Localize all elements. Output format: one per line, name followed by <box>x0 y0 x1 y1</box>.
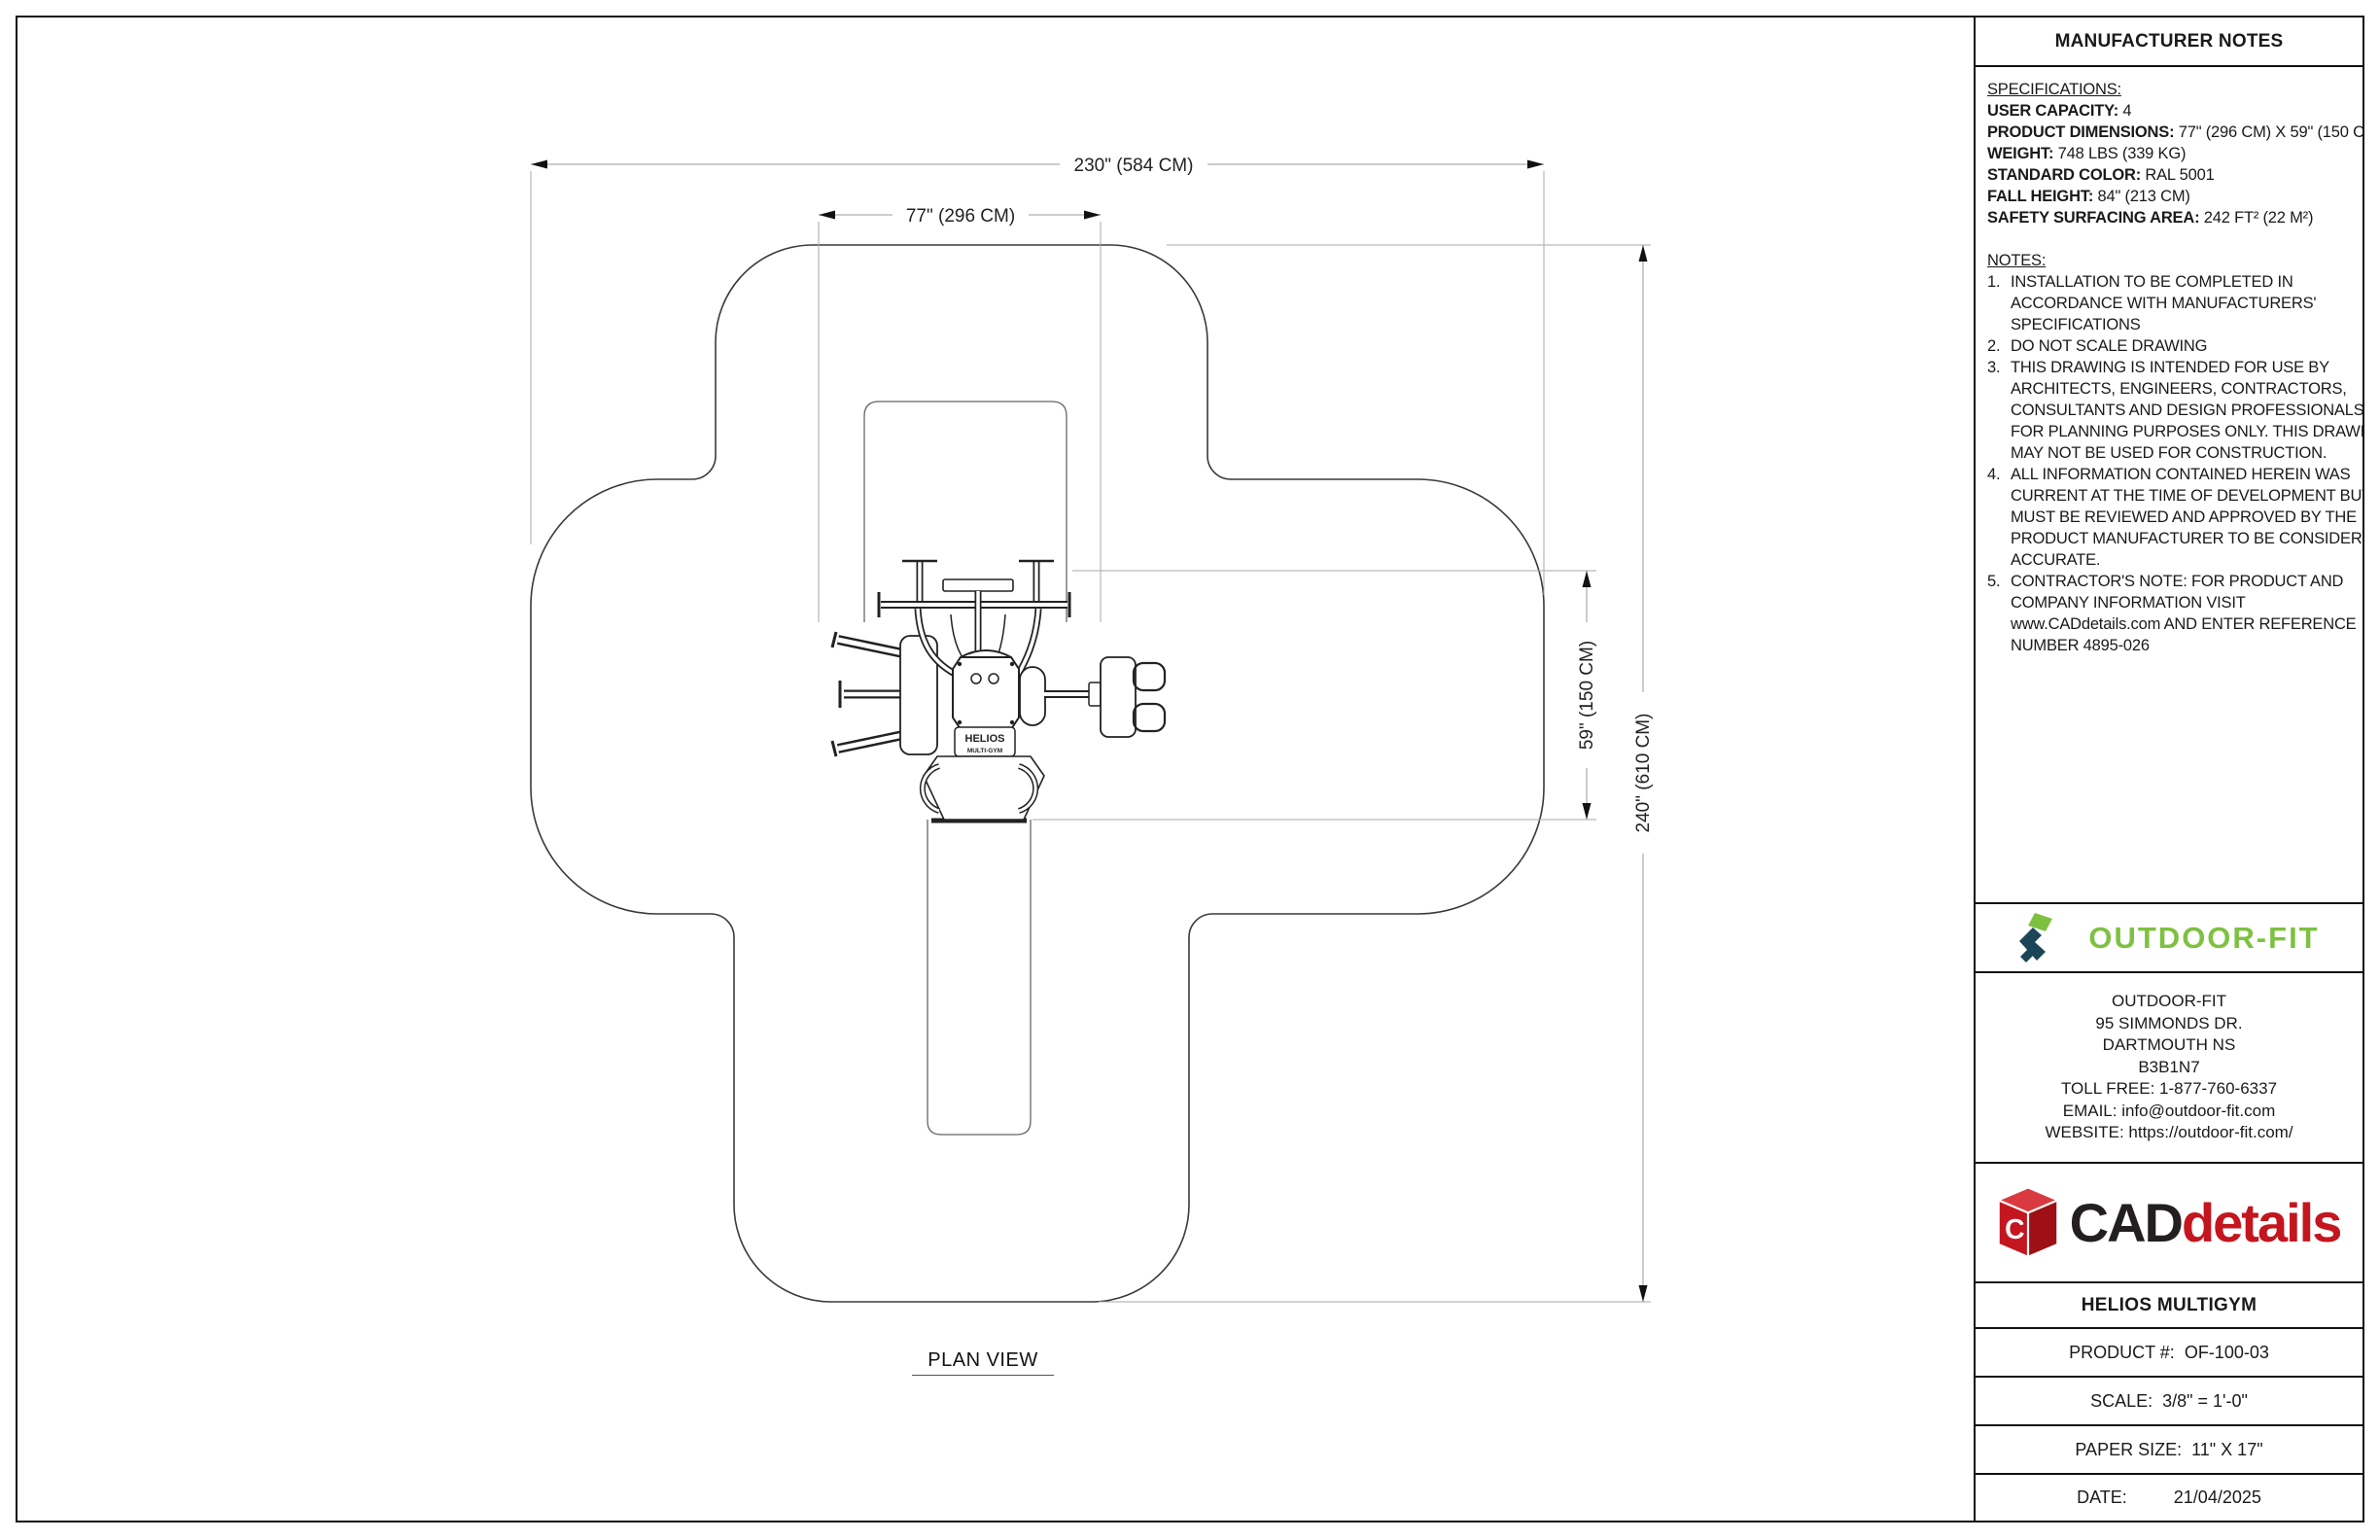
note-text-line: FOR PLANNING PURPOSES ONLY. THIS DRAWING <box>2011 421 2362 442</box>
note-text-line: MUST BE REVIEWED AND APPROVED BY THE <box>2011 507 2362 528</box>
dim-product-width-label: 77" (296 CM) <box>906 206 1015 227</box>
note-item: 1.INSTALLATION TO BE COMPLETED INACCORDA… <box>1987 271 2355 335</box>
note-text-line: SPECIFICATIONS <box>2011 314 2316 335</box>
product-number-row: PRODUCT #: OF-100-03 <box>1976 1329 2362 1378</box>
note-number: 5. <box>1987 571 2011 656</box>
specifications-and-notes: SPECIFICATIONS: USER CAPACITY: 4PRODUCT … <box>1976 67 2362 904</box>
note-item: 4.ALL INFORMATION CONTAINED HEREIN WASCU… <box>1987 464 2355 571</box>
note-text: INSTALLATION TO BE COMPLETED INACCORDANC… <box>2011 271 2316 335</box>
date-value: 21/04/2025 <box>2174 1487 2261 1508</box>
note-text: CONTRACTOR'S NOTE: FOR PRODUCT ANDCOMPAN… <box>2011 571 2356 656</box>
note-text-line: www.CADdetails.com AND ENTER REFERENCE <box>2011 613 2356 635</box>
note-item: 2.DO NOT SCALE DRAWING <box>1987 335 2355 357</box>
spec-label: STANDARD COLOR: <box>1987 166 2141 184</box>
specifications-heading: SPECIFICATIONS: <box>1987 79 2355 100</box>
address-line: WEBSITE: https://outdoor-fit.com/ <box>2045 1122 2292 1144</box>
note-text-line: DO NOT SCALE DRAWING <box>2011 335 2207 357</box>
paper-size-row: PAPER SIZE: 11" X 17" <box>1976 1426 2362 1475</box>
note-number: 2. <box>1987 335 2011 357</box>
spec-label: SAFETY SURFACING AREA: <box>1987 209 2199 227</box>
note-number: 4. <box>1987 464 2011 571</box>
note-text-line: ACCURATE. <box>2011 549 2362 571</box>
extension-lines <box>531 171 1651 1302</box>
note-text: THIS DRAWING IS INTENDED FOR USE BYARCHI… <box>2011 357 2362 464</box>
spec-item: WEIGHT: 748 LBS (339 KG) <box>1987 143 2355 164</box>
spec-value: 77" (296 CM) X 59" (150 CM) <box>2174 123 2362 141</box>
cad-sheet: { "drawing": { "plan_view_label": "PLAN … <box>0 0 2380 1540</box>
address-line: TOLL FREE: 1-877-760-6337 <box>2061 1078 2277 1101</box>
dim-overall-height-label: 240" (610 CM) <box>1633 714 1654 833</box>
dimension-overall-width: 230" (584 CM) <box>531 156 1544 176</box>
spec-item: FALL HEIGHT: 84" (213 CM) <box>1987 186 2355 207</box>
date-row: DATE: 21/04/2025 <box>1976 1475 2362 1521</box>
note-text-line: PRODUCT MANUFACTURER TO BE CONSIDERED <box>2011 528 2362 549</box>
note-text-line: CONTRACTOR'S NOTE: FOR PRODUCT AND <box>2011 571 2356 592</box>
equipment-name-plate-line2: MULTI-GYM <box>967 748 1002 754</box>
scale-value: 3/8" = 1'-0" <box>2162 1391 2248 1412</box>
manufacturer-address: OUTDOOR-FIT95 SIMMONDS DR.DARTMOUTH NSB3… <box>1976 973 2362 1164</box>
spec-item: STANDARD COLOR: RAL 5001 <box>1987 164 2355 186</box>
spec-value: 84" (213 CM) <box>2093 188 2190 205</box>
address-line: EMAIL: info@outdoor-fit.com <box>2063 1101 2276 1123</box>
manufacturer-notes-header: MANUFACTURER NOTES <box>1976 17 2362 67</box>
spec-item: SAFETY SURFACING AREA: 242 FT² (22 M²) <box>1987 207 2355 228</box>
spec-value: RAL 5001 <box>2141 166 2215 184</box>
spec-value: 748 LBS (339 KG) <box>2053 145 2186 162</box>
spec-label: FALL HEIGHT: <box>1987 188 2093 205</box>
note-text-line: CURRENT AT THE TIME OF DEVELOPMENT BUT <box>2011 485 2362 507</box>
dim-product-depth-label: 59" (150 CM) <box>1577 641 1597 750</box>
caddetails-logo: C CADdetails <box>1976 1164 2362 1283</box>
caddetails-logo-icon: C <box>1998 1188 2058 1258</box>
note-text-line: CONSULTANTS AND DESIGN PROFESSIONALS <box>2011 400 2362 421</box>
product-number-label: PRODUCT #: <box>2069 1343 2175 1363</box>
note-text-line: THIS DRAWING IS INTENDED FOR USE BY <box>2011 357 2362 378</box>
dimension-overall-height: 240" (610 CM) <box>1633 245 1654 1302</box>
note-text-line: ALL INFORMATION CONTAINED HEREIN WAS <box>2011 464 2362 485</box>
address-line: B3B1N7 <box>2138 1057 2199 1079</box>
product-number-value: OF-100-03 <box>2185 1343 2269 1363</box>
note-item: 3.THIS DRAWING IS INTENDED FOR USE BYARC… <box>1987 357 2355 464</box>
note-number: 3. <box>1987 357 2011 464</box>
spec-label: WEIGHT: <box>1987 145 2053 162</box>
dimension-product-depth: 59" (150 CM) <box>1577 571 1597 820</box>
equipment: HELIOS MULTI-GYM <box>832 402 1165 1135</box>
note-text: ALL INFORMATION CONTAINED HEREIN WASCURR… <box>2011 464 2362 571</box>
note-text-line: MAY NOT BE USED FOR CONSTRUCTION. <box>2011 442 2362 464</box>
address-line: DARTMOUTH NS <box>2103 1034 2236 1057</box>
outdoor-fit-logo-text: OUTDOOR-FIT <box>2088 921 2319 956</box>
notes-heading: NOTES: <box>1987 250 2355 271</box>
spec-item: USER CAPACITY: 4 <box>1987 100 2355 122</box>
equipment-name-plate-line1: HELIOS <box>965 733 1005 745</box>
dim-overall-width-label: 230" (584 CM) <box>1074 156 1194 176</box>
spacer <box>1987 228 2355 250</box>
address-line: OUTDOOR-FIT <box>2112 991 2226 1013</box>
spec-value: 4 <box>2118 102 2131 120</box>
notes-list: 1.INSTALLATION TO BE COMPLETED INACCORDA… <box>1987 271 2355 656</box>
note-item: 5.CONTRACTOR'S NOTE: FOR PRODUCT ANDCOMP… <box>1987 571 2355 656</box>
svg-text:C: C <box>2005 1213 2024 1244</box>
product-title: HELIOS MULTIGYM <box>1976 1283 2362 1329</box>
lower-rail <box>927 820 1031 1135</box>
note-text-line: NUMBER 4895-026 <box>2011 635 2356 656</box>
note-text-line: COMPANY INFORMATION VISIT <box>2011 592 2356 613</box>
paper-size-label: PAPER SIZE: <box>2075 1440 2182 1460</box>
spec-label: PRODUCT DIMENSIONS: <box>1987 123 2174 141</box>
spec-value: 242 FT² (22 M²) <box>2199 209 2313 227</box>
dimension-product-width: 77" (296 CM) <box>819 206 1101 227</box>
specifications-list: USER CAPACITY: 4PRODUCT DIMENSIONS: 77" … <box>1987 100 2355 228</box>
scale-label: SCALE: <box>2090 1391 2152 1412</box>
note-number: 1. <box>1987 271 2011 335</box>
note-text-line: ARCHITECTS, ENGINEERS, CONTRACTORS, <box>2011 378 2362 400</box>
outdoor-fit-logo-icon <box>2018 913 2079 963</box>
spec-item: PRODUCT DIMENSIONS: 77" (296 CM) X 59" (… <box>1987 122 2355 143</box>
note-text-line: ACCORDANCE WITH MANUFACTURERS' <box>2011 293 2316 314</box>
note-text: DO NOT SCALE DRAWING <box>2011 335 2207 357</box>
spec-label: USER CAPACITY: <box>1987 102 2118 120</box>
outdoor-fit-logo: OUTDOOR-FIT <box>1976 904 2362 973</box>
paper-size-value: 11" X 17" <box>2191 1440 2263 1460</box>
scale-row: SCALE: 3/8" = 1'-0" <box>1976 1378 2362 1426</box>
note-text-line: INSTALLATION TO BE COMPLETED IN <box>2011 271 2316 293</box>
title-block-panel: MANUFACTURER NOTES SPECIFICATIONS: USER … <box>1974 16 2364 1522</box>
plan-view-caption: PLAN VIEW <box>912 1349 1054 1376</box>
caddetails-logo-text: CADdetails <box>2070 1191 2341 1254</box>
address-line: 95 SIMMONDS DR. <box>2095 1013 2242 1035</box>
date-label: DATE: <box>2077 1487 2127 1508</box>
